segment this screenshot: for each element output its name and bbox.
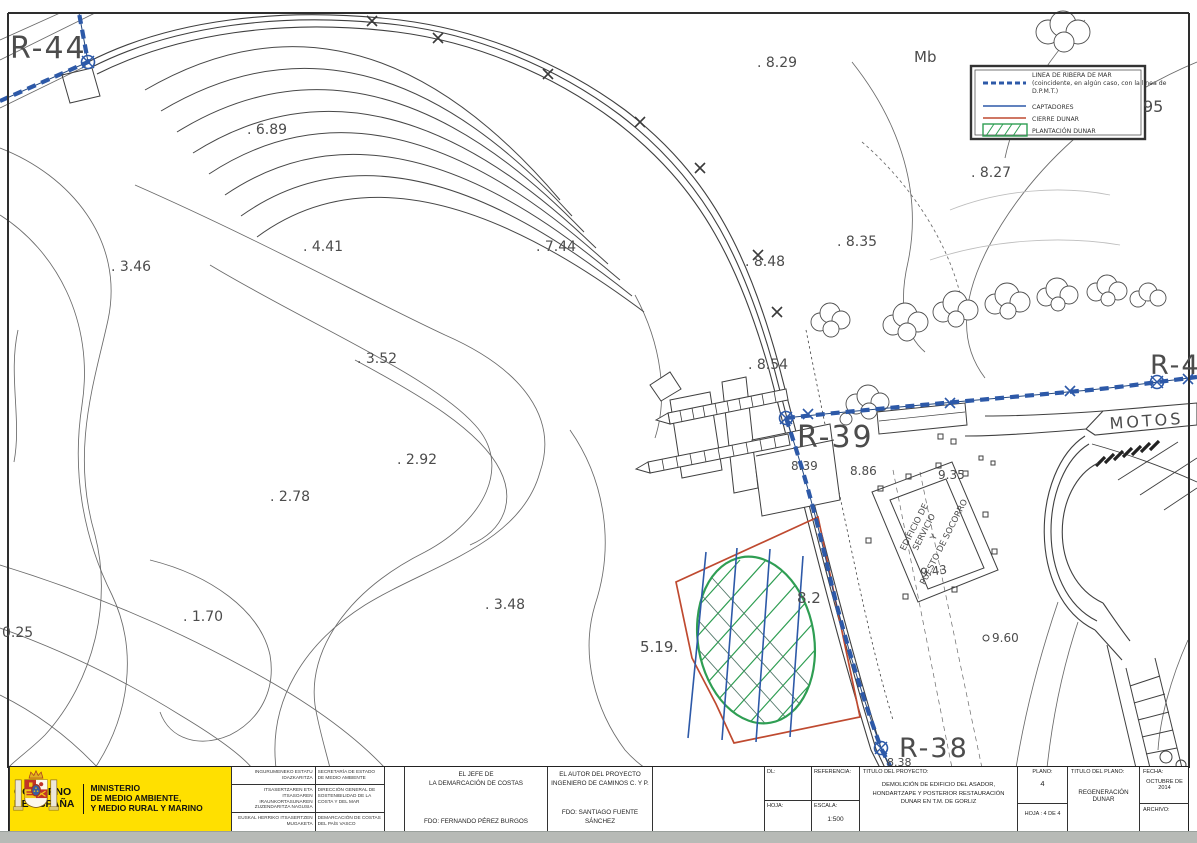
legend-plantacion-label: PLANTACIÓN DUNAR xyxy=(1032,126,1096,135)
department-stamps-table: INGURUMENEKO ESTATU IDAZKARITZA SECRETAR… xyxy=(231,767,384,831)
elevation-label: 9.60 xyxy=(992,631,1019,645)
legend: LINEA DE RIBERA DE MAR (coincidente, en … xyxy=(971,66,1167,139)
hoja-label: HOJA: xyxy=(765,801,812,831)
referencia-label: REFERENCIA: xyxy=(812,767,859,801)
stamp-es-1: SECRETARÍA DE ESTADO DE MEDIO AMBIENTE xyxy=(316,767,384,785)
jefe-title-line2: LA DEMARCACIÓN DE COSTAS xyxy=(405,780,547,789)
elevation-label: . 8.35 xyxy=(837,234,877,250)
stamp-eu-2: ITSASERTZAREN ETA ITSASOAREN IRAUNKORTAS… xyxy=(232,785,316,814)
service-building: EDIFICIO DE SERVICIO Y PUESTO DE SOCORRO xyxy=(866,462,998,602)
elevation-label: . 1.70 xyxy=(183,609,223,625)
elevation-label: 95 xyxy=(1143,97,1163,116)
signature-box-autor: EL AUTOR DEL PROYECTO INGENIERO DE CAMIN… xyxy=(547,767,652,831)
elevation-label: . 6.89 xyxy=(247,122,287,138)
plano-title-label: TITULO DEL PLANO: xyxy=(1071,769,1136,775)
archivo-label: ARCHIVO: xyxy=(1143,807,1170,813)
spain-coat-of-arms xyxy=(10,767,62,817)
captadores-lines xyxy=(688,548,803,742)
elevation-label: . 8.29 xyxy=(757,55,797,71)
legend-ribera-label3: D.P.M.T.) xyxy=(1032,88,1058,95)
spacer-cell xyxy=(384,767,404,831)
elevation-label: 5.19. xyxy=(640,638,678,656)
divider xyxy=(1140,803,1189,804)
project-title-box: TITULO DEL PROYECTO: DEMOLICIÓN DE EDIFI… xyxy=(859,767,1017,831)
ring-road xyxy=(1044,436,1130,660)
reference-grid: DL: REFERENCIA: HOJA: ESCALA: 1:500 xyxy=(764,767,859,831)
elevation-label: 9.43 xyxy=(919,562,947,580)
stamp-es-3: DEMARCACIÓN DE COSTAS DEL PAÍS VASCO xyxy=(316,813,384,831)
legend-ribera-label: LINEA DE RIBERA DE MAR xyxy=(1032,72,1112,79)
elevation-label: 9.35 xyxy=(938,468,965,482)
legend-captadores-label: CAPTADORES xyxy=(1032,104,1074,111)
elevation-label: . 4.41 xyxy=(303,239,343,255)
stairs-bottom-right xyxy=(983,635,1186,768)
elevation-label: . 3.48 xyxy=(485,597,525,613)
elevation-label: . 2.92 xyxy=(397,452,437,468)
benchmark-markers xyxy=(82,56,1164,755)
label-r39: R-39 xyxy=(797,420,874,455)
plan-sheet: EDIFICIO DE SERVICIO Y PUESTO DE SOCORRO xyxy=(0,0,1197,843)
stamp-eu-3: EUSKAL HERRIKO ITSASERTZEN MUGAKETA xyxy=(232,813,316,831)
ministry-logo-box: GOBIERNO DE ESPAÑA MINISTERIO DE MEDIO A… xyxy=(9,767,231,831)
fecha-label: FECHA: xyxy=(1140,767,1189,777)
elevation-label: . 2.78 xyxy=(270,489,310,505)
elevation-label: . 3.46 xyxy=(111,259,151,275)
plano-number: 4 xyxy=(1018,779,1067,788)
stamp-es-2: DIRECCIÓN GENERAL DE SOSTENIBILIDAD DE L… xyxy=(316,785,384,814)
stamp-eu-1: INGURUMENEKO ESTATU IDAZKARITZA xyxy=(232,767,316,785)
elevation-label: 0.25 xyxy=(2,625,33,641)
jefe-fdo: FDO: FERNANDO PÉREZ BURGOS xyxy=(405,818,547,827)
dl-label: DL: xyxy=(765,767,812,801)
escala-cell: ESCALA: 1:500 xyxy=(812,801,859,831)
project-title-label: TITULO DEL PROYECTO: xyxy=(863,769,1014,775)
escala-label: ESCALA: xyxy=(814,803,837,809)
elevation-label: . 8.54 xyxy=(748,357,788,373)
slope-hatch-lines xyxy=(145,47,644,312)
map-svg: EDIFICIO DE SERVICIO Y PUESTO DE SOCORRO xyxy=(0,0,1197,768)
plano-title-box: TITULO DEL PLANO: REGENERACIÓN DUNAR xyxy=(1067,767,1139,831)
legend-cierre-label: CIERRE DUNAR xyxy=(1032,116,1080,123)
hoja-value: HOJA : 4 DE 4 xyxy=(1018,811,1067,817)
elevation-label: 8.86 xyxy=(850,464,877,478)
ministerio-text: MINISTERIO DE MEDIO AMBIENTE, Y MEDIO RU… xyxy=(83,784,202,813)
plano-box: PLANO: 4 HOJA : 4 DE 4 xyxy=(1017,767,1067,831)
label-motos: MOTOS xyxy=(1109,409,1184,433)
plano-label: PLANO: xyxy=(1018,767,1067,775)
plano-title-value: REGENERACIÓN DUNAR xyxy=(1071,789,1136,803)
plot-outline xyxy=(62,68,100,103)
escala-value: 1:500 xyxy=(814,816,857,823)
empty-signature-box xyxy=(652,767,764,831)
scan-edge-strip xyxy=(0,831,1197,843)
divider xyxy=(1018,803,1067,804)
elevation-label: . 8.48 xyxy=(745,254,785,270)
project-title-text: DEMOLICIÓN DE EDIFICIO DEL ASADOR, HONDA… xyxy=(863,781,1014,807)
elevation-label: 8.39 xyxy=(791,459,818,473)
legend-ribera-label2: (coincidente, en algún caso, con la líne… xyxy=(1032,79,1167,87)
label-r4: R-4 xyxy=(1150,350,1197,381)
signature-box-jefe: EL JEFE DE LA DEMARCACIÓN DE COSTAS FDO:… xyxy=(404,767,547,831)
title-block: GOBIERNO DE ESPAÑA MINISTERIO DE MEDIO A… xyxy=(8,766,1189,832)
jefe-title-line1: EL JEFE DE xyxy=(405,771,547,780)
autor-title-line2: INGENIERO DE CAMINOS C. Y P. xyxy=(548,780,652,789)
map-labels: R-44R-39R-38R-4MOTOSMb. 8.29. 6.89. 8.27… xyxy=(2,31,1197,768)
label-mb: Mb xyxy=(914,48,936,66)
elevation-label: 8.2 xyxy=(797,589,821,607)
fecha-value: OCTUBRE DE 2014 xyxy=(1140,779,1189,791)
elevation-label: . 7.44 xyxy=(536,239,576,255)
fecha-box: FECHA: OCTUBRE DE 2014 ARCHIVO: xyxy=(1139,767,1189,831)
label-r44: R-44 xyxy=(10,31,87,66)
parking-bays xyxy=(1092,442,1197,510)
elevation-label: . 3.52 xyxy=(357,351,397,367)
autor-title-line1: EL AUTOR DEL PROYECTO xyxy=(548,771,652,780)
autor-fdo: FDO: SANTIAGO FUENTE SÁNCHEZ xyxy=(548,809,652,826)
elevation-label: . 8.27 xyxy=(971,165,1011,181)
